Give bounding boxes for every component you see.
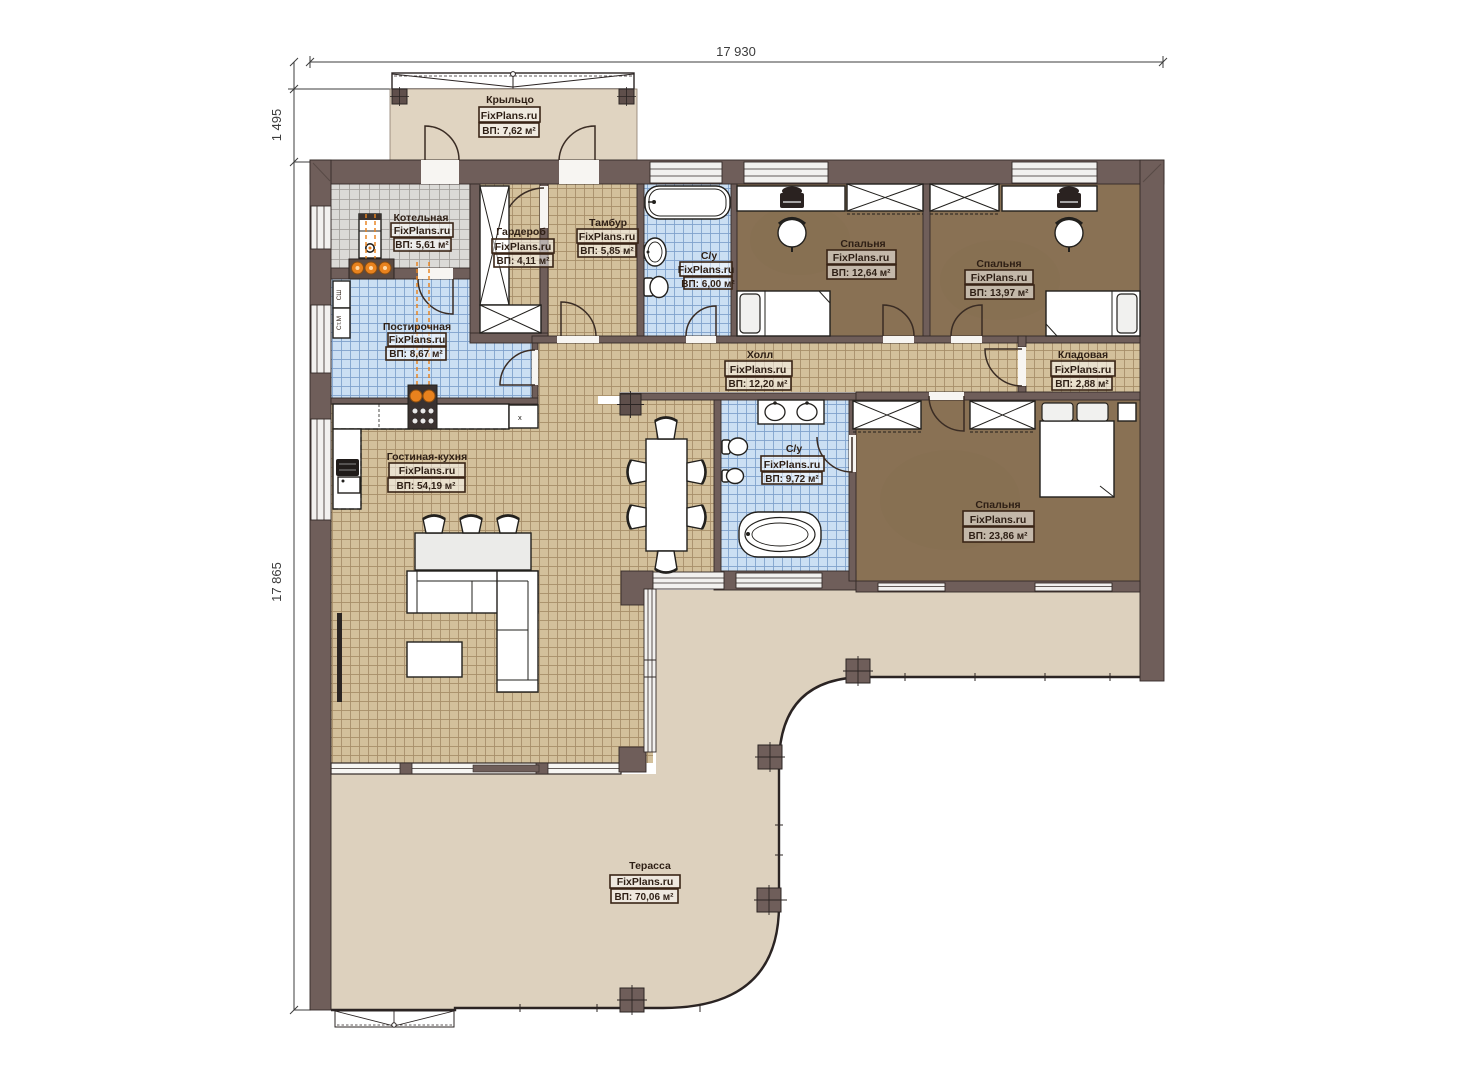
svg-text:ВП: 5,61 м²: ВП: 5,61 м² [395, 240, 449, 251]
svg-text:Гардероб: Гардероб [496, 226, 546, 238]
svg-text:ВП: 2,88 м²: ВП: 2,88 м² [1055, 379, 1109, 390]
svg-text:С/у: С/у [786, 443, 803, 455]
svg-text:ВП: 5,85 м²: ВП: 5,85 м² [580, 246, 634, 257]
svg-text:FixPlans.ru: FixPlans.ru [481, 110, 538, 122]
svg-text:17 930: 17 930 [716, 44, 756, 59]
svg-text:FixPlans.ru: FixPlans.ru [399, 465, 456, 477]
svg-text:ВП: 13,97 м²: ВП: 13,97 м² [969, 288, 1029, 299]
svg-text:Спальня: Спальня [840, 238, 885, 250]
svg-text:FixPlans.ru: FixPlans.ru [764, 459, 821, 471]
svg-text:Тамбур: Тамбур [589, 217, 627, 229]
svg-text:ВП: 12,64 м²: ВП: 12,64 м² [831, 268, 891, 279]
svg-text:ВП: 54,19 м²: ВП: 54,19 м² [396, 481, 456, 492]
svg-text:FixPlans.ru: FixPlans.ru [617, 876, 674, 888]
svg-text:FixPlans.ru: FixPlans.ru [678, 264, 735, 276]
svg-text:FixPlans.ru: FixPlans.ru [970, 514, 1027, 526]
svg-text:Терасса: Терасса [629, 860, 671, 872]
svg-text:Крыльцо: Крыльцо [486, 94, 534, 106]
svg-text:FixPlans.ru: FixPlans.ru [495, 241, 552, 253]
svg-text:Кладовая: Кладовая [1058, 349, 1108, 361]
svg-text:Ст.М: Ст.М [336, 316, 343, 330]
svg-text:Котельная: Котельная [394, 212, 449, 224]
svg-text:1 495: 1 495 [269, 109, 284, 142]
svg-text:FixPlans.ru: FixPlans.ru [971, 272, 1028, 284]
svg-text:СШ: СШ [336, 290, 343, 301]
svg-text:ВП: 9,72 м²: ВП: 9,72 м² [765, 474, 819, 485]
svg-text:Спальня: Спальня [976, 258, 1021, 270]
svg-text:FixPlans.ru: FixPlans.ru [1055, 364, 1112, 376]
svg-text:Спальня: Спальня [975, 499, 1020, 511]
svg-text:ВП: 12,20 м²: ВП: 12,20 м² [728, 379, 788, 390]
svg-text:FixPlans.ru: FixPlans.ru [730, 364, 787, 376]
svg-text:Постирочная: Постирочная [383, 321, 451, 333]
svg-text:FixPlans.ru: FixPlans.ru [389, 334, 446, 346]
svg-text:Гостиная-кухня: Гостиная-кухня [387, 451, 467, 463]
svg-text:С/у: С/у [701, 250, 718, 262]
svg-text:Холл: Холл [747, 349, 773, 361]
svg-text:х: х [518, 413, 522, 422]
svg-text:ВП: 23,86 м²: ВП: 23,86 м² [968, 531, 1028, 542]
svg-text:17 865: 17 865 [269, 562, 284, 602]
svg-text:ВП: 6,00 м²: ВП: 6,00 м² [681, 279, 735, 290]
svg-text:FixPlans.ru: FixPlans.ru [394, 225, 451, 237]
svg-text:ВП: 8,67 м²: ВП: 8,67 м² [389, 349, 443, 360]
svg-text:FixPlans.ru: FixPlans.ru [579, 231, 636, 243]
svg-text:ВП: 70,06 м²: ВП: 70,06 м² [614, 892, 674, 903]
svg-text:ВП: 7,62 м²: ВП: 7,62 м² [482, 126, 536, 137]
svg-text:FixPlans.ru: FixPlans.ru [833, 252, 890, 264]
svg-text:ВП: 4,11 м²: ВП: 4,11 м² [497, 256, 551, 267]
